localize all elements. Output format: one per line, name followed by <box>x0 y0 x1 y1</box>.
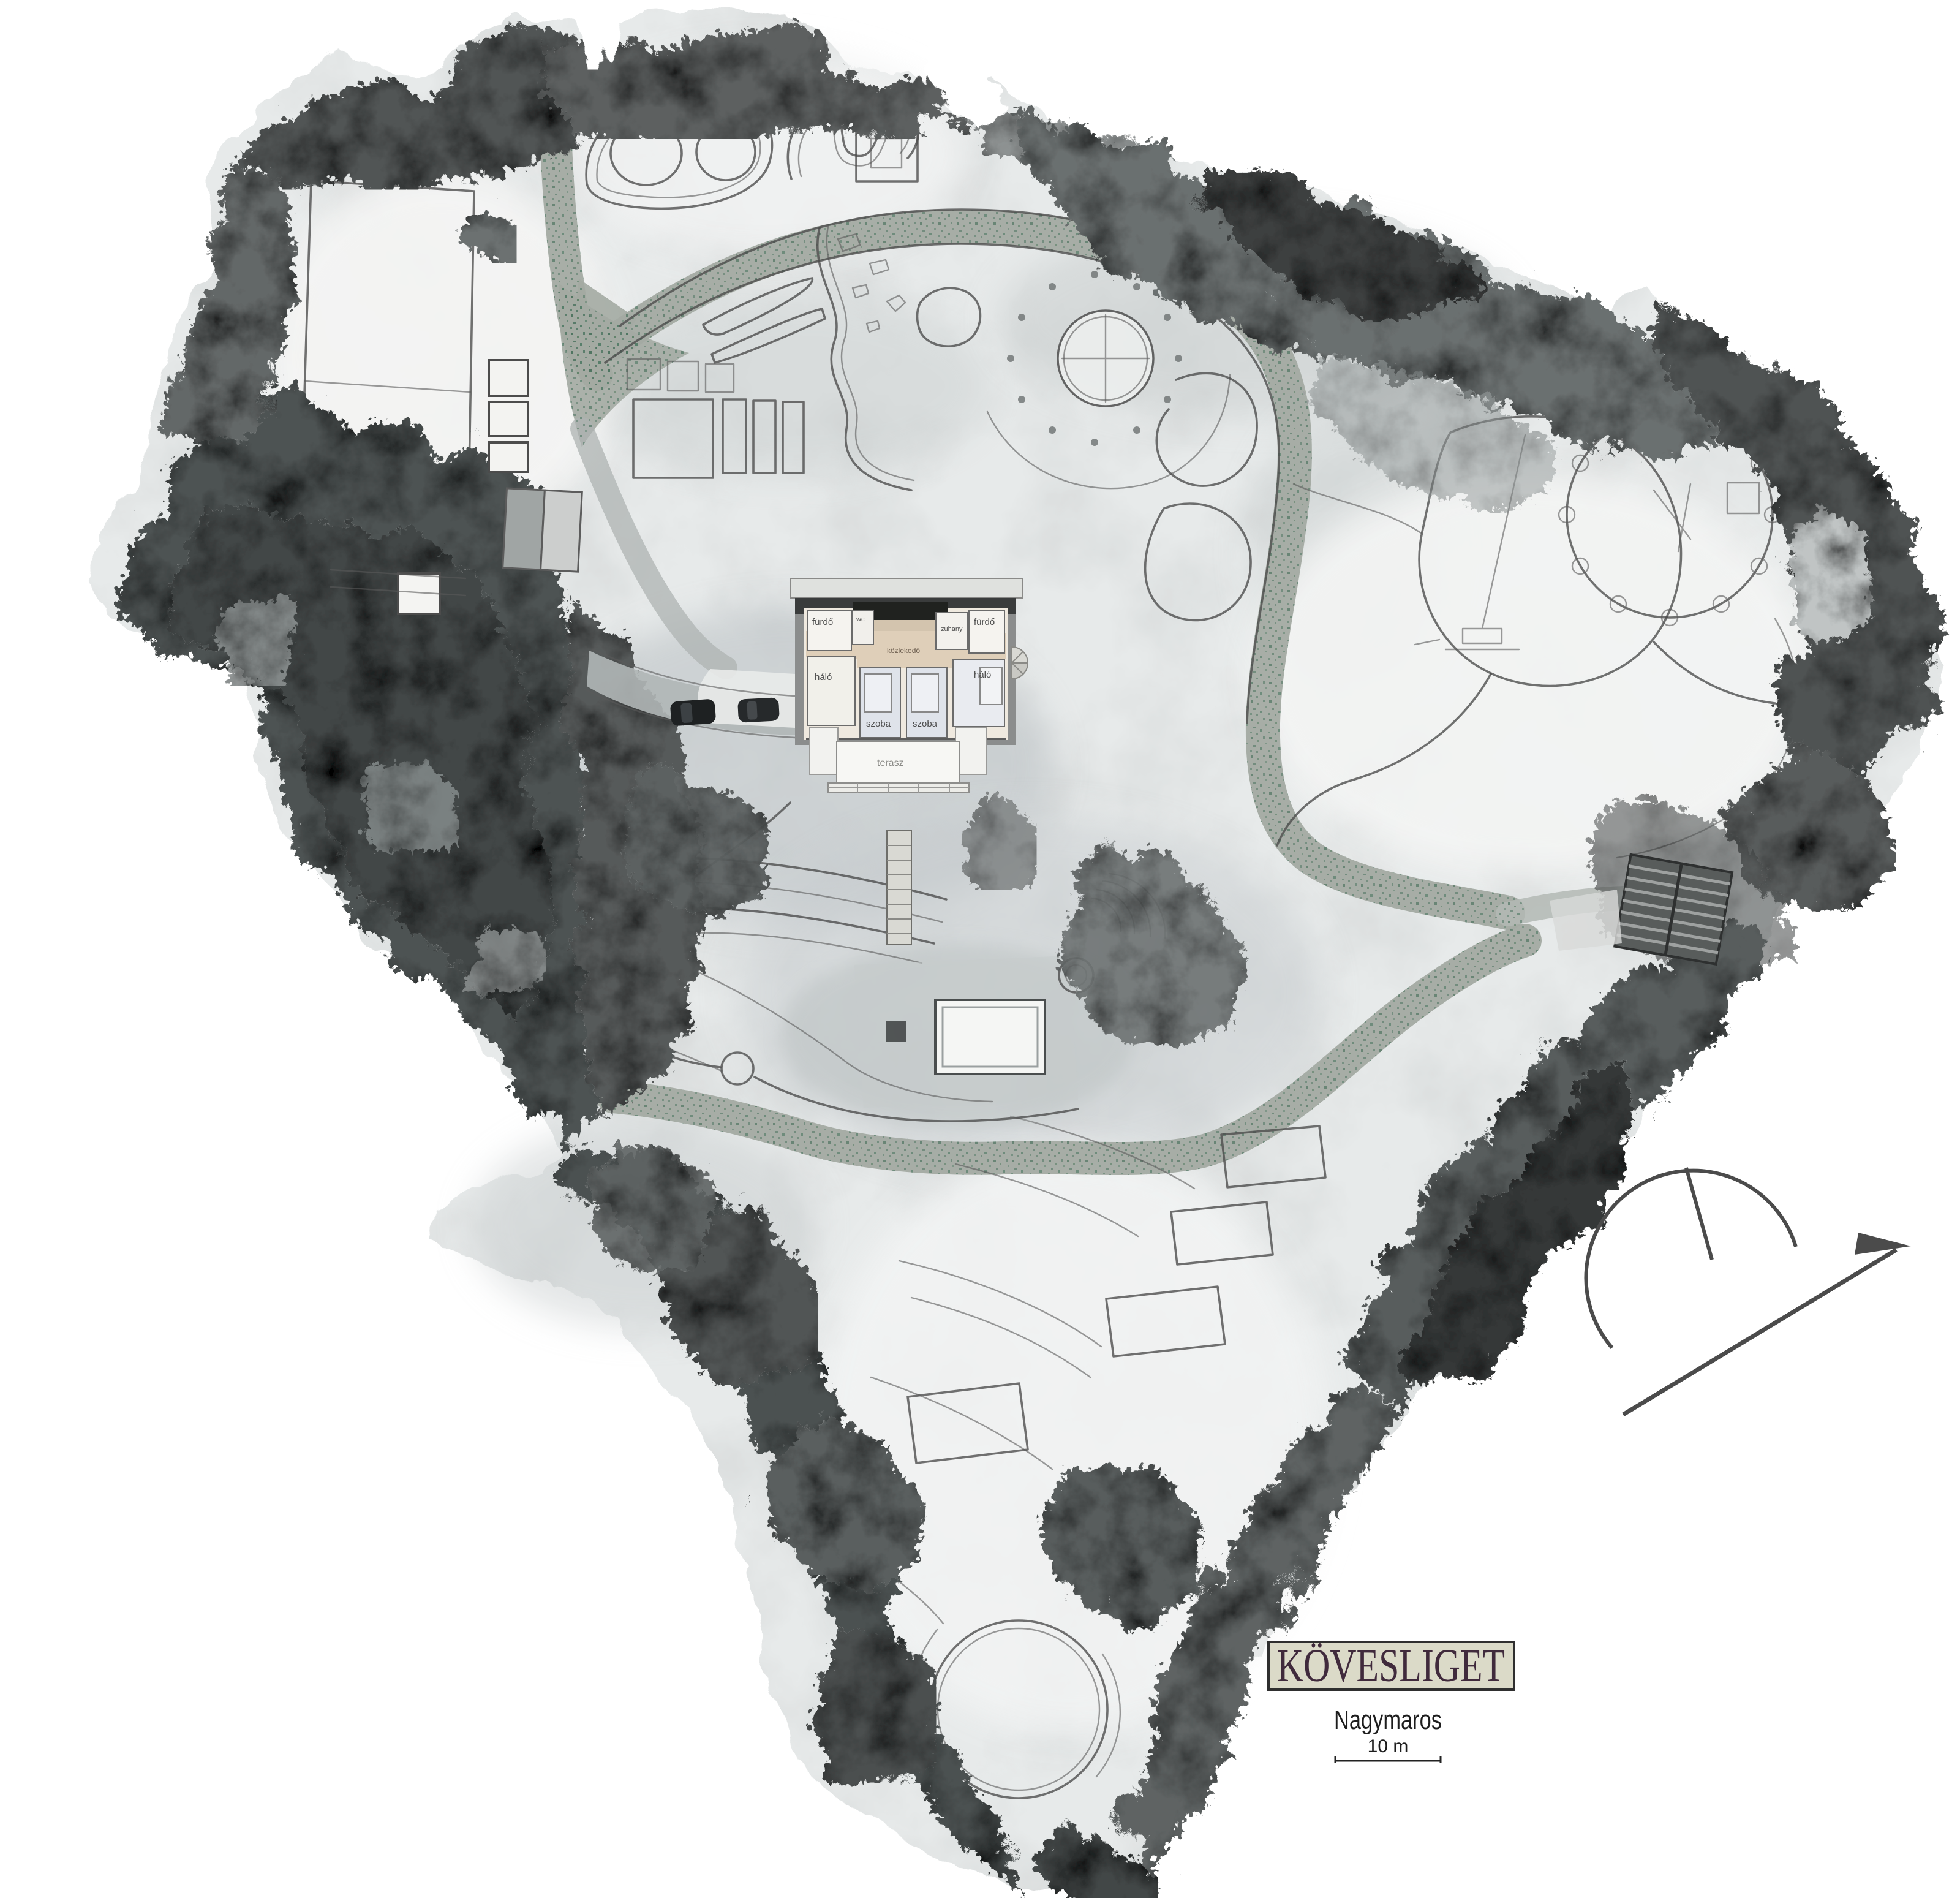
svg-text:szoba: szoba <box>913 719 938 729</box>
svg-text:10 m: 10 m <box>1368 1736 1409 1756</box>
svg-text:wc: wc <box>856 616 865 623</box>
svg-text:terasz: terasz <box>877 758 904 768</box>
svg-text:háló: háló <box>974 670 991 680</box>
svg-text:Nagymaros: Nagymaros <box>1334 1705 1442 1735</box>
svg-text:KÖVESLIGET: KÖVESLIGET <box>1277 1640 1505 1692</box>
svg-text:fürdő: fürdő <box>812 617 833 627</box>
svg-text:szoba: szoba <box>866 719 891 729</box>
svg-text:közlekedő: közlekedő <box>887 646 920 655</box>
svg-text:háló: háló <box>815 672 832 682</box>
svg-text:fürdő: fürdő <box>974 617 995 627</box>
svg-text:zuhany: zuhany <box>941 626 963 633</box>
